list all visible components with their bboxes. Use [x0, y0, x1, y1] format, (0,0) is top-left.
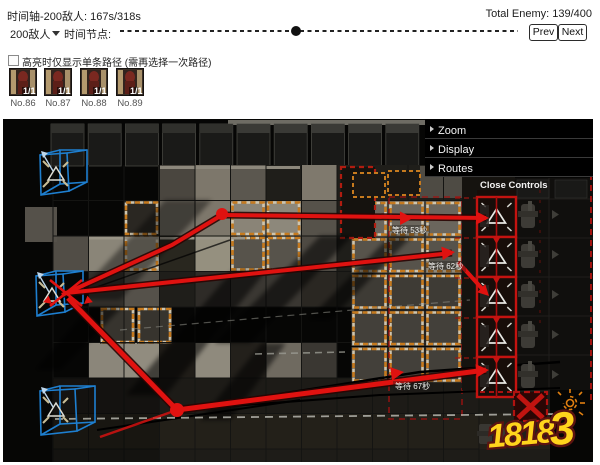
svg-text:Display: Display: [438, 144, 475, 156]
svg-text:Zoom: Zoom: [438, 125, 466, 137]
svg-text:等待 53秒: 等待 53秒: [392, 225, 427, 235]
svg-text:1/1: 1/1: [94, 86, 107, 96]
svg-text:等待 67秒: 等待 67秒: [395, 381, 430, 391]
svg-text:1818: 1818: [486, 412, 557, 455]
svg-text:3: 3: [547, 401, 577, 455]
svg-text:Close Controls: Close Controls: [480, 180, 548, 191]
svg-text:1/1: 1/1: [23, 86, 36, 96]
svg-text:1/1: 1/1: [130, 86, 143, 96]
svg-text:等待 62秒: 等待 62秒: [428, 261, 463, 271]
svg-text:Routes: Routes: [438, 163, 473, 175]
svg-text:1/1: 1/1: [58, 86, 71, 96]
